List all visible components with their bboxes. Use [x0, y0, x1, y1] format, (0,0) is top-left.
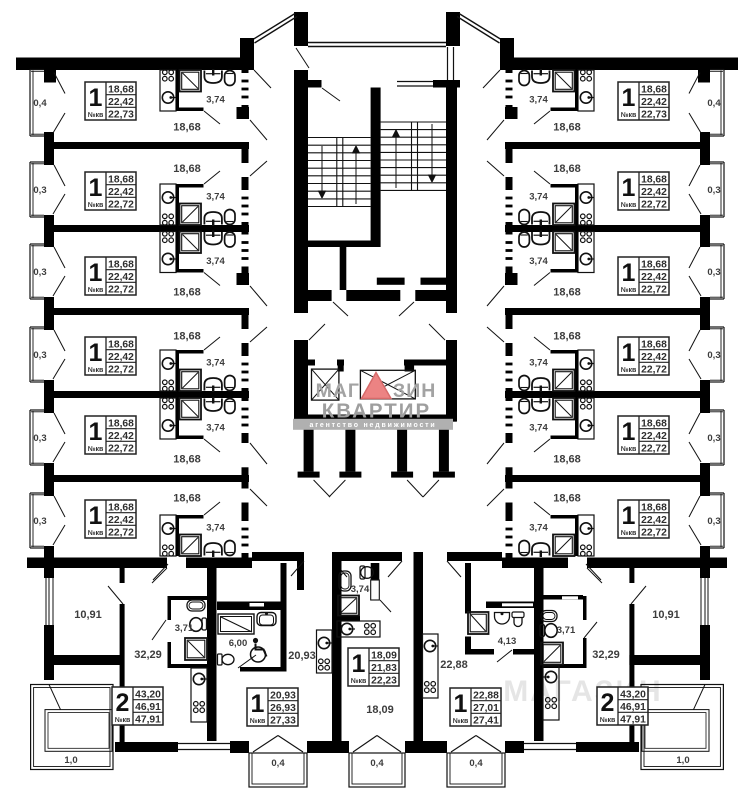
svg-text:47,91: 47,91	[135, 715, 161, 726]
svg-text:0,3: 0,3	[707, 350, 720, 361]
svg-text:18,68: 18,68	[173, 163, 201, 175]
svg-text:27,01: 27,01	[473, 703, 499, 714]
svg-text:3,74: 3,74	[529, 192, 548, 203]
svg-text:3,74: 3,74	[529, 423, 548, 434]
svg-text:22,72: 22,72	[641, 365, 667, 376]
svg-text:18,68: 18,68	[641, 260, 667, 271]
svg-text:1: 1	[622, 418, 636, 446]
svg-text:3,74: 3,74	[206, 523, 225, 534]
svg-text:1: 1	[622, 174, 636, 202]
svg-text:0,3: 0,3	[707, 185, 720, 196]
svg-text:26,93: 26,93	[270, 703, 296, 714]
svg-text:22,72: 22,72	[108, 365, 134, 376]
svg-text:3,74: 3,74	[206, 423, 225, 434]
svg-text:22,42: 22,42	[641, 431, 667, 442]
svg-text:27,41: 27,41	[473, 716, 499, 727]
svg-text:18,68: 18,68	[641, 175, 667, 186]
svg-text:22,72: 22,72	[641, 444, 667, 455]
svg-text:1: 1	[622, 502, 636, 530]
svg-text:43,20: 43,20	[135, 690, 161, 701]
svg-text:агентство недвижимости: агентство недвижимости	[310, 422, 437, 429]
svg-text:18,68: 18,68	[553, 122, 581, 134]
svg-text:18,68: 18,68	[108, 85, 134, 96]
svg-text:№кв: №кв	[88, 366, 104, 374]
svg-text:0,3: 0,3	[707, 433, 720, 444]
svg-text:22,72: 22,72	[641, 528, 667, 539]
svg-text:1: 1	[622, 84, 636, 112]
svg-text:46,91: 46,91	[135, 702, 161, 713]
svg-text:0,4: 0,4	[33, 98, 47, 109]
svg-text:№кв: №кв	[600, 716, 616, 724]
svg-text:18,68: 18,68	[641, 419, 667, 430]
svg-text:№кв: №кв	[250, 717, 266, 725]
svg-text:22,72: 22,72	[108, 200, 134, 211]
svg-text:3,74: 3,74	[529, 358, 548, 369]
svg-text:1: 1	[622, 339, 636, 367]
svg-text:1: 1	[89, 339, 103, 367]
svg-text:18,68: 18,68	[173, 287, 201, 299]
svg-text:№кв: №кв	[88, 111, 104, 119]
svg-text:2: 2	[116, 689, 130, 717]
svg-text:18,68: 18,68	[641, 503, 667, 514]
svg-text:0,4: 0,4	[469, 758, 483, 769]
svg-text:3,74: 3,74	[206, 256, 225, 267]
svg-text:10,91: 10,91	[652, 609, 680, 621]
svg-text:1: 1	[622, 259, 636, 287]
svg-text:1: 1	[89, 259, 103, 287]
svg-text:22,42: 22,42	[108, 97, 134, 108]
svg-text:18,09: 18,09	[371, 651, 397, 662]
svg-text:№кв: №кв	[88, 445, 104, 453]
svg-text:22,42: 22,42	[641, 352, 667, 363]
svg-text:22,72: 22,72	[641, 285, 667, 296]
svg-text:22,42: 22,42	[108, 515, 134, 526]
svg-text:18,09: 18,09	[366, 704, 394, 716]
svg-text:№кв: №кв	[621, 445, 637, 453]
svg-text:0,3: 0,3	[33, 185, 46, 196]
svg-text:3,74: 3,74	[529, 256, 548, 267]
svg-text:4,13: 4,13	[498, 636, 517, 647]
svg-text:22,42: 22,42	[641, 272, 667, 283]
svg-text:3,74: 3,74	[529, 95, 548, 106]
svg-text:1: 1	[89, 418, 103, 446]
svg-text:18,68: 18,68	[108, 340, 134, 351]
svg-text:22,42: 22,42	[108, 187, 134, 198]
svg-text:22,73: 22,73	[641, 110, 667, 121]
svg-text:22,23: 22,23	[371, 676, 397, 687]
svg-text:1: 1	[89, 174, 103, 202]
svg-text:22,42: 22,42	[641, 97, 667, 108]
svg-text:20,93: 20,93	[288, 650, 316, 662]
svg-text:1: 1	[89, 502, 103, 530]
svg-text:22,42: 22,42	[108, 272, 134, 283]
svg-text:18,68: 18,68	[173, 122, 201, 134]
svg-text:10,91: 10,91	[74, 609, 102, 621]
svg-text:22,72: 22,72	[108, 285, 134, 296]
svg-text:0,3: 0,3	[33, 267, 46, 278]
svg-text:32,29: 32,29	[592, 649, 620, 661]
svg-text:№кв: №кв	[115, 716, 131, 724]
svg-text:18,68: 18,68	[553, 163, 581, 175]
svg-text:46,91: 46,91	[620, 702, 646, 713]
svg-text:0,3: 0,3	[33, 350, 46, 361]
svg-text:0,4: 0,4	[707, 98, 721, 109]
svg-text:22,72: 22,72	[108, 528, 134, 539]
svg-text:22,42: 22,42	[108, 431, 134, 442]
svg-text:21,83: 21,83	[371, 663, 397, 674]
svg-text:0,3: 0,3	[33, 516, 46, 527]
svg-text:18,68: 18,68	[641, 85, 667, 96]
svg-text:2: 2	[601, 689, 615, 717]
svg-text:0,4: 0,4	[271, 758, 285, 769]
svg-text:18,68: 18,68	[173, 331, 201, 343]
svg-text:1: 1	[89, 84, 103, 112]
svg-text:№кв: №кв	[88, 201, 104, 209]
svg-text:3,74: 3,74	[206, 95, 225, 106]
svg-text:№кв: №кв	[621, 529, 637, 537]
svg-text:18,68: 18,68	[553, 454, 581, 466]
svg-text:0,3: 0,3	[707, 267, 720, 278]
svg-text:3,74: 3,74	[206, 192, 225, 203]
svg-text:1,0: 1,0	[676, 755, 689, 766]
svg-text:22,88: 22,88	[473, 691, 499, 702]
svg-text:22,73: 22,73	[108, 110, 134, 121]
svg-text:32,29: 32,29	[134, 649, 162, 661]
svg-text:27,33: 27,33	[270, 716, 296, 727]
svg-text:№кв: №кв	[453, 717, 469, 725]
svg-text:18,68: 18,68	[108, 260, 134, 271]
svg-text:22,72: 22,72	[641, 200, 667, 211]
svg-text:№кв: №кв	[351, 677, 367, 685]
svg-text:18,68: 18,68	[108, 419, 134, 430]
svg-text:22,72: 22,72	[108, 444, 134, 455]
svg-text:0,3: 0,3	[33, 433, 46, 444]
svg-text:1: 1	[352, 650, 366, 678]
svg-text:43,20: 43,20	[620, 690, 646, 701]
svg-text:№кв: №кв	[88, 286, 104, 294]
svg-text:1: 1	[454, 690, 468, 718]
svg-text:3,74: 3,74	[529, 523, 548, 534]
svg-text:22,42: 22,42	[108, 352, 134, 363]
svg-text:0,3: 0,3	[707, 516, 720, 527]
svg-text:18,68: 18,68	[553, 493, 581, 505]
svg-text:18,68: 18,68	[108, 175, 134, 186]
svg-text:3,71: 3,71	[557, 625, 576, 636]
svg-text:18,68: 18,68	[641, 340, 667, 351]
svg-text:1,0: 1,0	[64, 755, 77, 766]
svg-text:22,42: 22,42	[641, 515, 667, 526]
svg-text:18,68: 18,68	[553, 287, 581, 299]
svg-text:№кв: №кв	[621, 366, 637, 374]
svg-text:№кв: №кв	[621, 201, 637, 209]
svg-text:3,71: 3,71	[175, 623, 194, 634]
svg-text:18,68: 18,68	[108, 503, 134, 514]
svg-text:18,68: 18,68	[553, 331, 581, 343]
svg-text:18,68: 18,68	[173, 454, 201, 466]
svg-text:18,68: 18,68	[173, 493, 201, 505]
svg-text:20,93: 20,93	[270, 691, 296, 702]
svg-text:3,74: 3,74	[206, 358, 225, 369]
svg-text:6,00: 6,00	[229, 638, 248, 649]
svg-text:47,91: 47,91	[620, 715, 646, 726]
svg-text:№кв: №кв	[621, 111, 637, 119]
svg-text:№кв: №кв	[88, 529, 104, 537]
svg-text:22,88: 22,88	[440, 659, 468, 671]
svg-text:22,42: 22,42	[641, 187, 667, 198]
svg-text:3,74: 3,74	[351, 584, 370, 595]
svg-text:1: 1	[251, 690, 265, 718]
svg-text:0,4: 0,4	[370, 758, 384, 769]
svg-text:№кв: №кв	[621, 286, 637, 294]
